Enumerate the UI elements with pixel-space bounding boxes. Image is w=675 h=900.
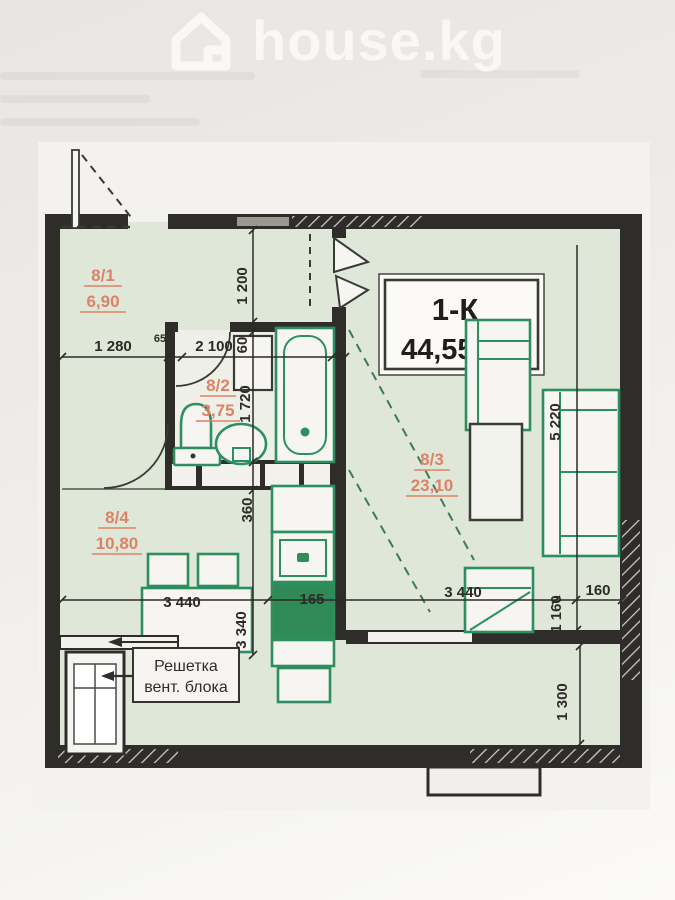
svg-text:8/2: 8/2 xyxy=(206,376,230,395)
dim-160: 160 xyxy=(585,582,610,599)
kitchen-cabinet xyxy=(272,640,334,666)
vent-label-line1: Решетка xyxy=(154,658,218,675)
svg-text:23,10: 23,10 xyxy=(411,476,454,495)
kitchen-sink xyxy=(272,532,334,582)
dim-65: 65 xyxy=(154,333,166,345)
coffee-table xyxy=(470,424,522,520)
kitchen-cabinet xyxy=(278,668,330,702)
floorplan: 1-К 44,55м 2 xyxy=(45,150,642,795)
balcony-protrusion xyxy=(428,767,540,795)
svg-text:8/3: 8/3 xyxy=(420,450,444,469)
svg-text:10,80: 10,80 xyxy=(96,534,139,553)
floorplan-photo: house.kg xyxy=(0,0,675,900)
faint-print-artifact xyxy=(0,70,580,126)
dim-360: 360 xyxy=(239,497,256,522)
dim-1280: 1 280 xyxy=(94,338,132,355)
dim-5220: 5 220 xyxy=(547,403,564,441)
dim-1720: 1 720 xyxy=(237,385,254,423)
bathtub xyxy=(276,328,334,462)
dim-3340: 3 340 xyxy=(233,611,250,649)
dim-60: 60 xyxy=(234,337,251,354)
chair xyxy=(148,554,188,586)
sink xyxy=(216,424,266,464)
svg-text:3,75: 3,75 xyxy=(201,401,234,420)
dim-1200: 1 200 xyxy=(234,267,251,305)
vent-label-line2: вент. блока xyxy=(144,679,228,696)
dim-165: 165 xyxy=(299,591,324,608)
svg-text:8/1: 8/1 xyxy=(91,266,115,285)
site-logo-text: house.kg xyxy=(252,9,506,72)
chair xyxy=(198,554,238,586)
dim-1160: 1 160 xyxy=(548,595,565,633)
dim-1300: 1 300 xyxy=(554,683,571,721)
wardrobe xyxy=(466,320,530,430)
svg-text:8/4: 8/4 xyxy=(105,508,129,527)
house-icon xyxy=(176,17,226,66)
site-logo: house.kg xyxy=(176,9,506,72)
svg-text:6,90: 6,90 xyxy=(86,292,119,311)
dim-3440-right: 3 440 xyxy=(444,584,482,601)
dim-3440-left: 3 440 xyxy=(163,594,201,611)
dim-2100: 2 100 xyxy=(195,338,233,355)
kitchen-counter xyxy=(272,486,334,532)
